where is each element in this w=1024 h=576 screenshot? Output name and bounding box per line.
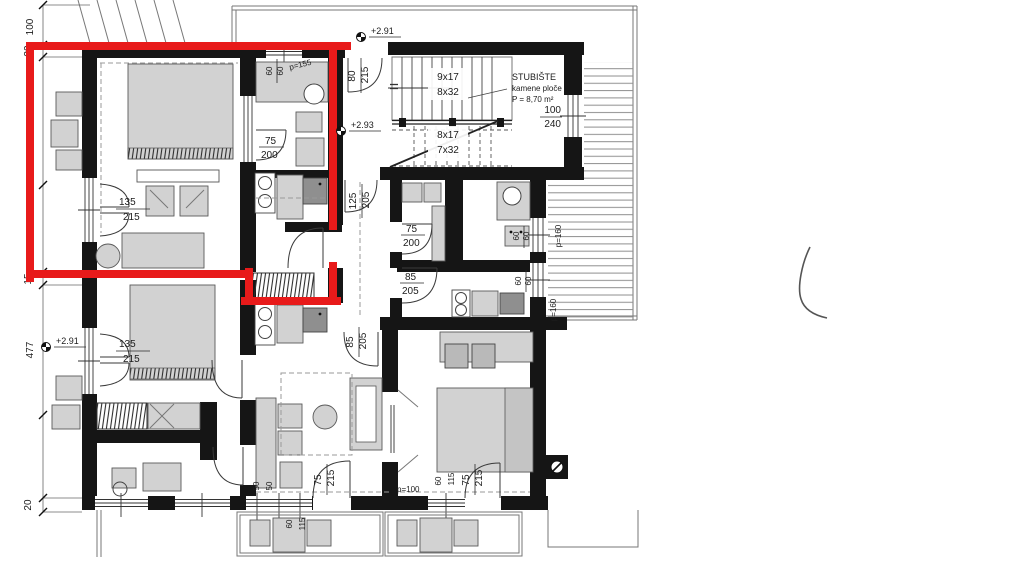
label-door-terr-c-h: 215	[326, 469, 337, 486]
label-stair-area: P = 8,70 m²	[512, 95, 554, 104]
label-door-balcony-low-h: 215	[123, 354, 140, 365]
bed-upper-left	[128, 64, 233, 159]
label-flight-up-treads: 8x32	[437, 87, 459, 98]
label-stair-material: kamene ploče	[512, 84, 562, 93]
label-win-kitchen-a: 60	[265, 66, 274, 75]
floor-plan-page: 100 20 456 15 477 20	[0, 0, 1024, 576]
pocket-door	[240, 96, 256, 162]
closet	[148, 403, 200, 429]
label-dim-100: 100	[25, 18, 36, 35]
label-dim-477: 477	[25, 341, 36, 358]
bed-mid-left	[130, 285, 215, 380]
label-win-ru-a: 60	[512, 231, 521, 240]
label-door-bath-right-w: 75	[406, 224, 418, 235]
roof-lines	[78, 0, 185, 43]
door-arc-bedroom-mid	[212, 360, 242, 398]
label-win-rl-parapet: p=160	[549, 298, 558, 321]
label-win-ru-parapet: p=160	[554, 224, 563, 247]
desk	[143, 463, 181, 491]
label-flight-up-risers: 9x17	[437, 72, 459, 83]
label-door-balcony-low-w: 135	[119, 339, 136, 350]
sofa-upper-left	[122, 233, 204, 268]
label-elevation-upper: +2.91	[371, 26, 394, 36]
label-win-rl-a: 60	[514, 276, 523, 285]
label-door-hall-top-w: 125	[348, 192, 359, 209]
table-upper-left	[137, 170, 219, 182]
round-table	[96, 244, 120, 268]
label-door-balcony-up-w: 135	[119, 197, 136, 208]
label-win-br-b: 115	[447, 472, 456, 485]
label-win-ru-b: 60	[522, 231, 531, 240]
label-elevation-lower-left: +2.91	[56, 336, 79, 346]
pen-stroke	[800, 247, 827, 318]
label-door-bath-left-w: 75	[265, 136, 277, 147]
label-door-terr-r-h: 215	[474, 469, 485, 486]
label-door-bath-right-h: 200	[403, 238, 420, 249]
door-arc-room-small	[213, 447, 243, 485]
terrace-hatching	[548, 62, 633, 318]
window-bottom-pair	[246, 493, 290, 520]
label-elevation-landing: +2.93	[351, 120, 374, 130]
label-door-balcony-up-h: 215	[123, 212, 140, 223]
label-door-living-h: 205	[358, 332, 369, 349]
label-dim-20-bottom: 20	[23, 499, 34, 511]
label-win-50b: 50	[265, 481, 274, 490]
wardrobe-hatch-upper	[252, 273, 314, 300]
coffee-table	[313, 405, 337, 429]
floor-plan-svg: 100 20 456 15 477 20	[0, 0, 1024, 576]
benchmark-icon	[357, 33, 366, 42]
benchmark-icon	[337, 127, 346, 136]
label-stair-name: STUBIŠTE	[512, 72, 556, 82]
toilet	[296, 112, 322, 132]
balconies-bottom	[97, 510, 638, 557]
wardrobe-hatch-lower	[97, 403, 147, 429]
label-door-hall-top-h: 205	[361, 191, 372, 208]
window-bottom-b	[175, 493, 230, 517]
label-door-room-right-h: 205	[402, 286, 419, 297]
kitchen-sink	[303, 178, 327, 204]
label-win-50a: 50	[252, 481, 261, 490]
label-win-rl-b: 60	[524, 276, 533, 285]
label-win-bc-b: 115	[298, 517, 307, 530]
label-win-br-parapet: p=100	[397, 485, 420, 494]
label-door-living-w: 85	[345, 336, 356, 348]
label-door-bath-left-h: 200	[261, 150, 278, 161]
label-flight-down-risers: 8x17	[437, 130, 459, 141]
label-door-terr-r-w: 75	[461, 474, 472, 486]
chair	[112, 468, 136, 488]
boiler-icon	[503, 187, 521, 205]
label-stair-window-w: 100	[544, 105, 561, 116]
door-opening-terrace-right	[465, 496, 501, 510]
window-french-upper	[78, 178, 100, 242]
window-stair	[560, 95, 586, 137]
drain-symbol-icon	[551, 461, 563, 473]
staircase: 9x17 8x32 8x17 7x32 STUBIŠTE kamene ploč…	[388, 57, 562, 167]
label-stair-window-h: 240	[544, 119, 561, 130]
shower	[296, 138, 324, 166]
label-win-bc-a: 60	[285, 519, 294, 528]
window-bottom-a	[95, 493, 148, 517]
sofa	[256, 398, 276, 488]
label-door-entry-w: 80	[347, 70, 358, 82]
benchmark-icon	[42, 343, 51, 352]
label-door-room-right-w: 85	[405, 272, 417, 283]
door-opening-terrace-center	[313, 496, 351, 510]
label-door-terr-c-w: 75	[313, 474, 324, 486]
label-win-br-a: 60	[434, 476, 443, 485]
label-flight-down-treads: 7x32	[437, 145, 459, 156]
label-door-entry-h: 215	[360, 66, 371, 83]
dryer	[424, 183, 441, 202]
sink-icon	[304, 84, 324, 104]
door-arc-hall-left	[288, 228, 323, 268]
washer	[402, 183, 422, 202]
